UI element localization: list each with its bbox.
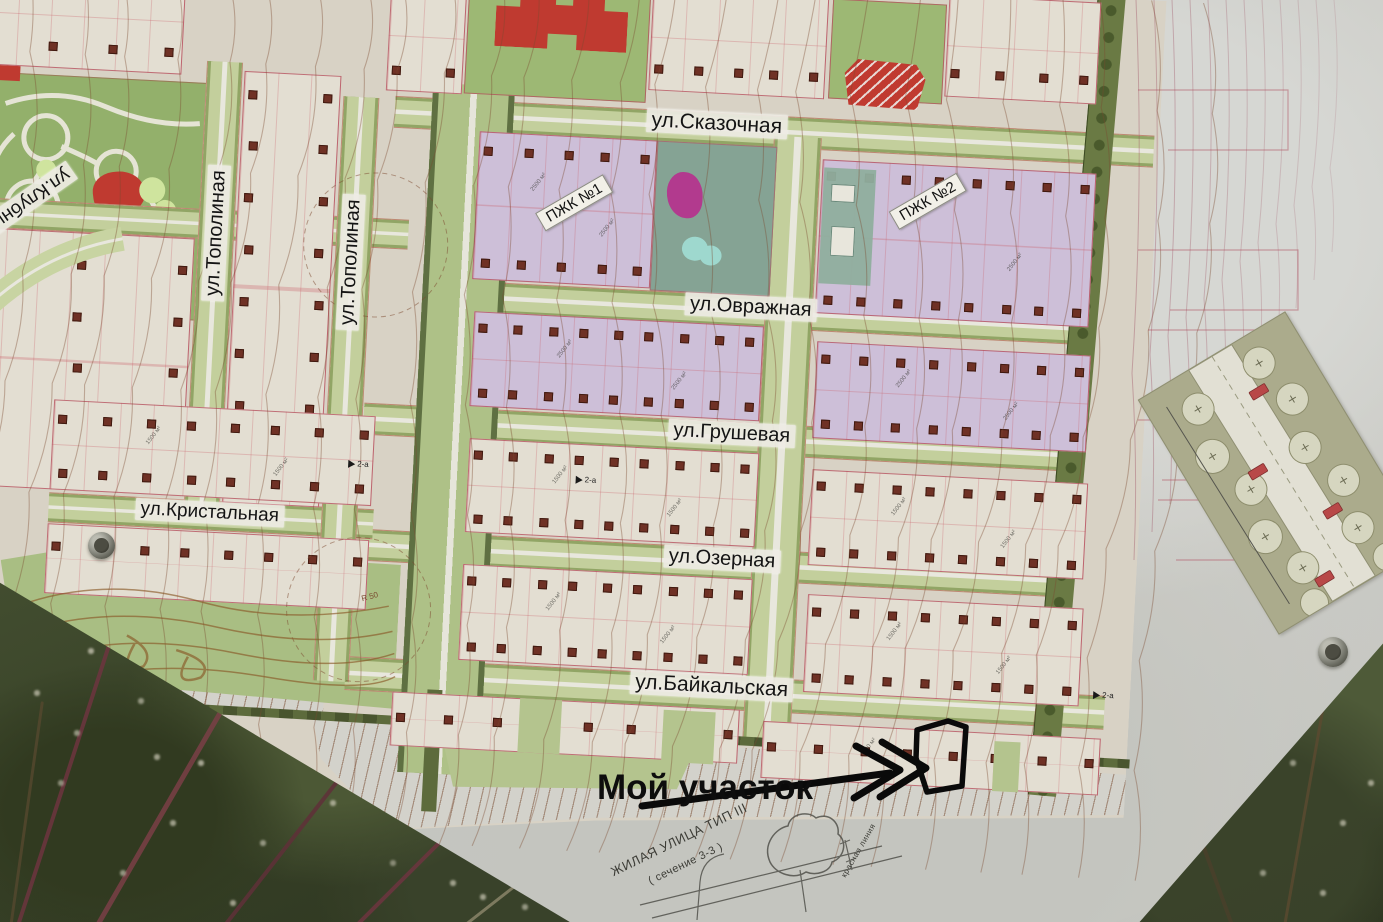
plant-stem <box>1 609 122 922</box>
photo-of-plan-board: 1500 м²1500 м²2500 м²2500 м²2500 м²2500 … <box>0 0 1383 922</box>
my-plot-outline <box>916 721 966 792</box>
plan-board: 1500 м²1500 м²2500 м²2500 м²2500 м²2500 … <box>0 0 1383 922</box>
cross-section-sketch <box>640 814 902 920</box>
my-plot-label: Мой участок <box>597 768 813 808</box>
plant-stem <box>0 701 44 922</box>
